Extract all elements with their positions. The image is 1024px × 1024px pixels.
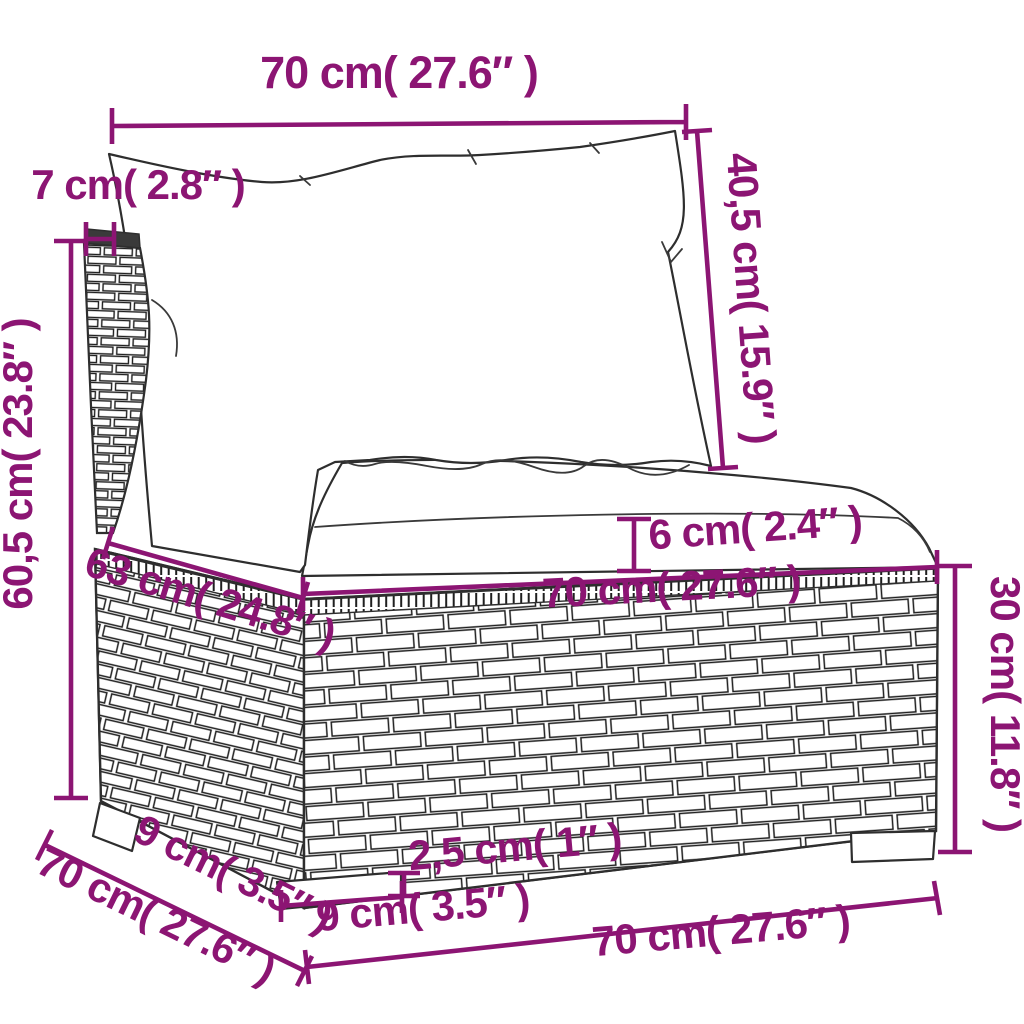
dim-base-height-label: 30 cm( 11.8″ ) [982, 576, 1024, 832]
backrest-panel [84, 229, 149, 533]
dim-total-width-label: 70 cm( 27.6″ ) [590, 896, 851, 965]
product-dimension-diagram: 70 cm( 27.6″ ) 40,5 cm( 15.9″ ) 7 cm( 2.… [0, 0, 1024, 1024]
dim-back-width: 70 cm( 27.6″ ) [112, 47, 686, 144]
dim-back-width-label: 70 cm( 27.6″ ) [260, 47, 538, 98]
diagram-canvas: 70 cm( 27.6″ ) 40,5 cm( 15.9″ ) 7 cm( 2.… [0, 0, 1024, 1024]
dim-total-height: 60,5 cm( 23.8″ ) [0, 241, 88, 798]
dim-base-height: 30 cm( 11.8″ ) [938, 566, 1024, 852]
dim-back-cushion-height-label: 40,5 cm( 15.9″ ) [718, 151, 785, 445]
backrest-panel-face [84, 243, 149, 533]
foot-front-right [851, 831, 935, 862]
dim-total-height-label: 60,5 cm( 23.8″ ) [0, 318, 41, 609]
dim-backrest-thickness-label: 7 cm( 2.8″ ) [31, 161, 245, 208]
